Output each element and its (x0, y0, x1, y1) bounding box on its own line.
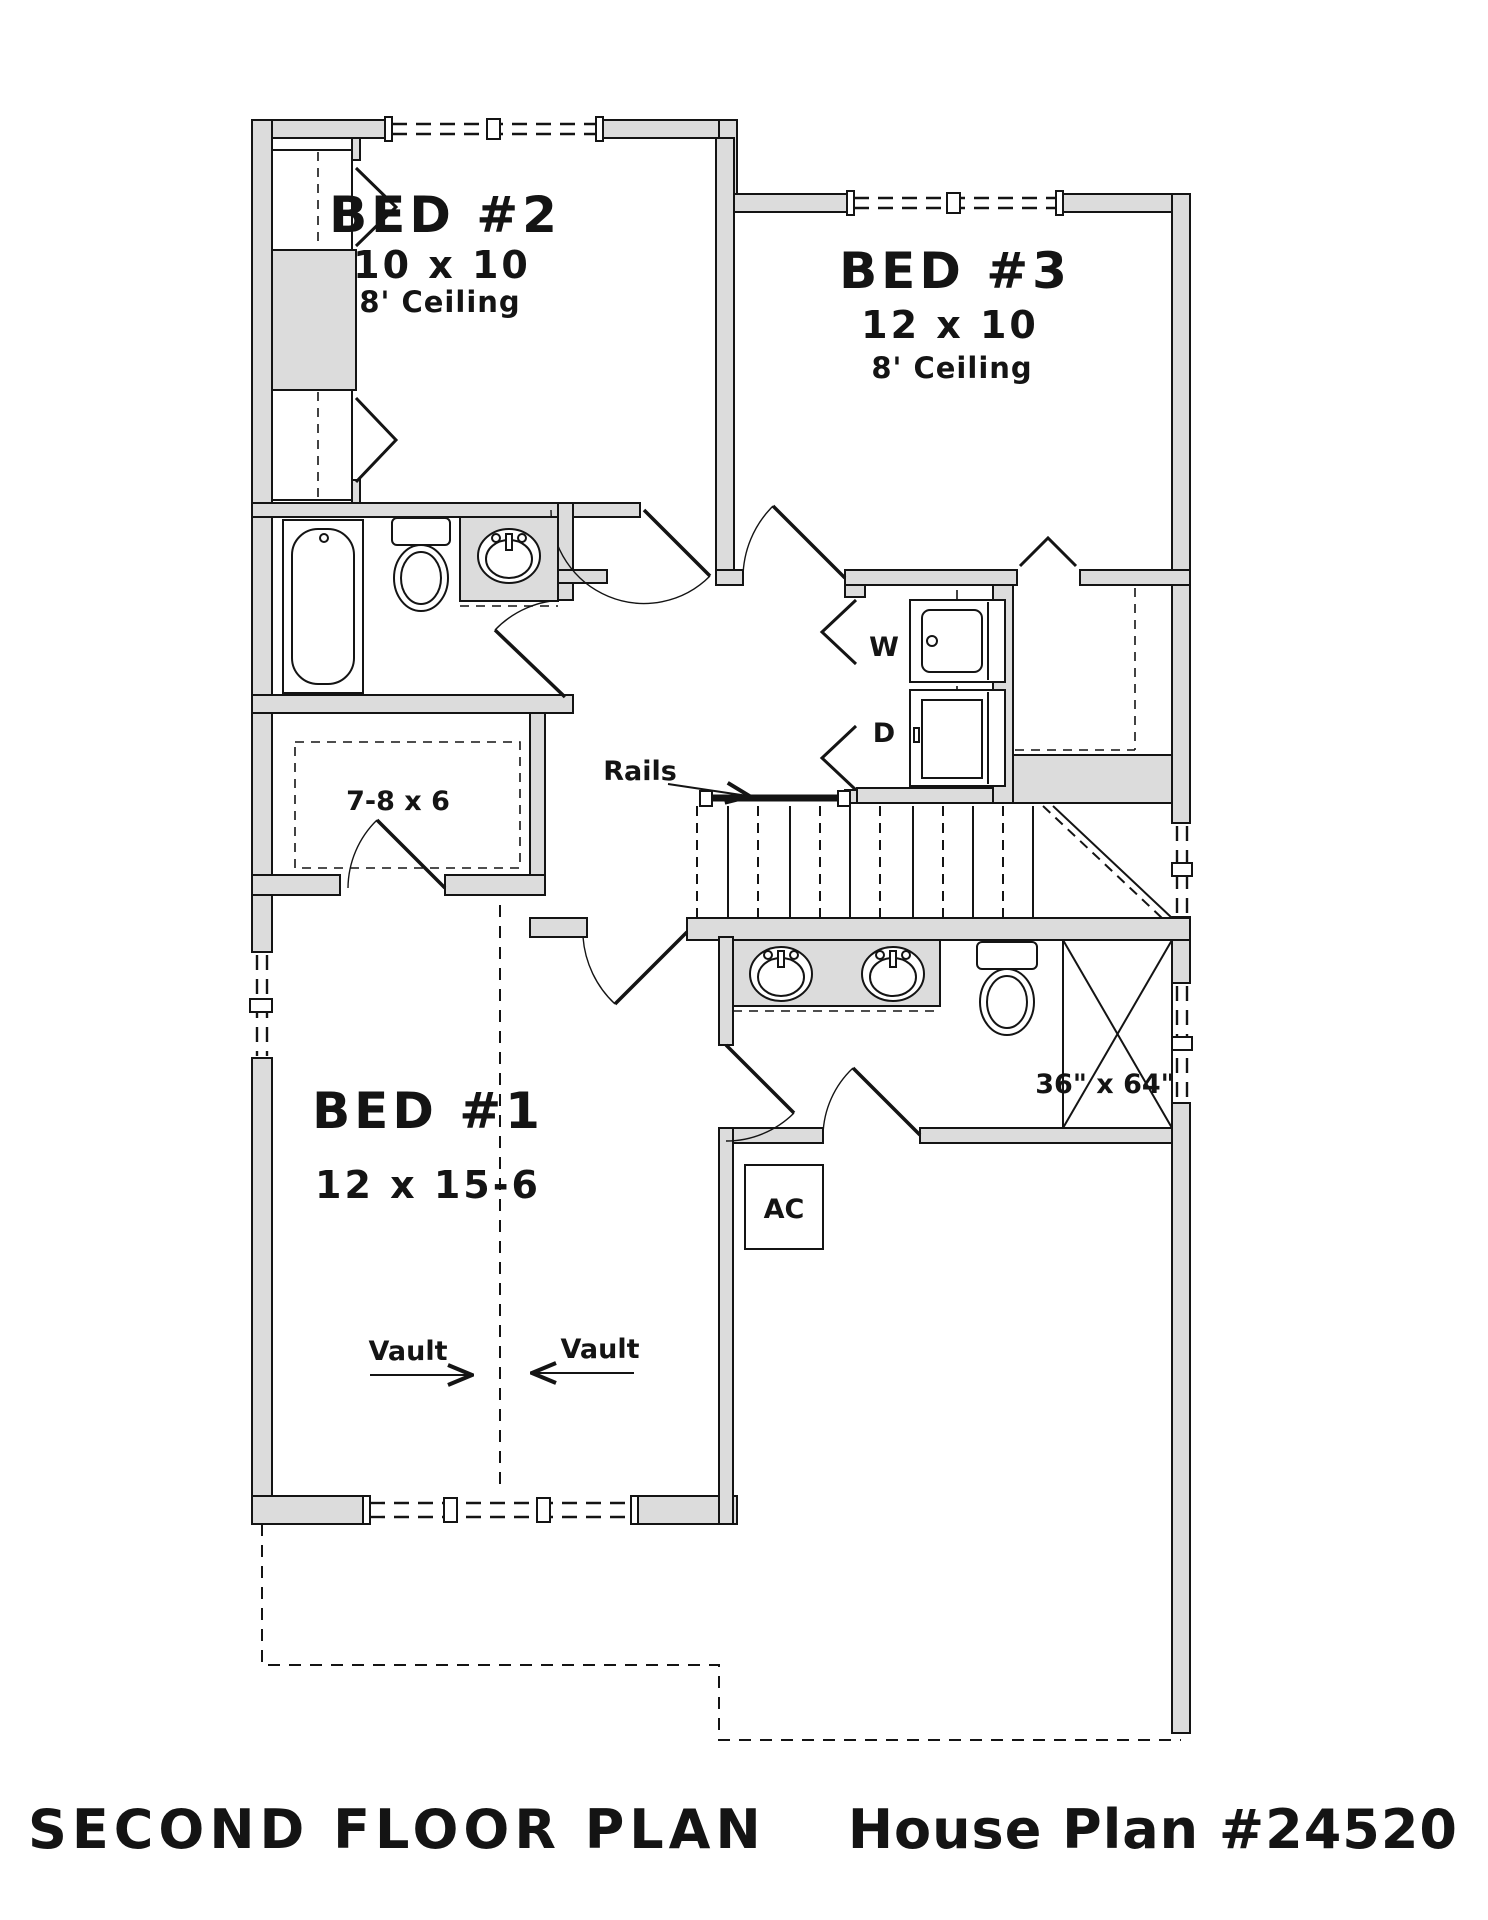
window-bed1-bottom (363, 1496, 638, 1524)
bed2-dims: 10 x 10 (353, 243, 531, 287)
ac-label: AC (764, 1194, 805, 1225)
toilet-1 (392, 518, 450, 611)
bed1-name: BED #1 (312, 1082, 544, 1140)
bed3-name: BED #3 (839, 242, 1071, 300)
toilet-2 (977, 942, 1037, 1035)
vault-left-label: Vault (368, 1336, 447, 1367)
walls (252, 120, 1190, 1733)
bed3-closet-door (1020, 538, 1076, 566)
stairwell-open-edge (1053, 806, 1172, 918)
floor-plan-canvas: W D (0, 0, 1488, 1920)
floor-plan-page: W D (0, 0, 1488, 1920)
dryer-label: D (873, 718, 895, 749)
drawing-title: SECOND FLOOR PLAN (28, 1798, 766, 1861)
bed2-name: BED #2 (329, 186, 561, 244)
walkin-closet-door (348, 820, 445, 888)
window-bed1-left (250, 955, 272, 1056)
storage-door (823, 1068, 920, 1135)
bath1-door (495, 600, 565, 697)
title-block: SECOND FLOOR PLAN House Plan #24520 (28, 1798, 1458, 1861)
laundry: W D (869, 590, 1005, 786)
vault-annotations: Vault Vault (368, 1334, 639, 1375)
bed3-ceiling: 8' Ceiling (871, 351, 1032, 385)
plan-number: House Plan #24520 (848, 1798, 1458, 1861)
vault-right-label: Vault (560, 1334, 639, 1365)
bathtub (283, 520, 363, 693)
closet-door-icon (356, 398, 396, 482)
laundry-bifold-doors (822, 600, 856, 790)
dryer (910, 690, 1005, 786)
double-vanity (733, 940, 940, 1011)
rails-annotation: Rails (603, 756, 748, 796)
window-bed2-top (385, 117, 603, 141)
shower-size-label: 36" x 64" (1035, 1069, 1175, 1100)
roof-overhang-outline (262, 1524, 1181, 1740)
bed3-closet (1015, 588, 1135, 750)
washer-label: W (869, 632, 899, 663)
vanity-sink-1 (460, 517, 558, 606)
bed3-dims: 12 x 10 (861, 303, 1039, 347)
window-right-upper (1172, 826, 1192, 915)
stair-rail (700, 791, 850, 806)
window-bed3-top (847, 191, 1063, 215)
closet-dims: 7-8 x 6 (346, 786, 450, 817)
bath2-door (726, 1045, 794, 1141)
bed2-closet-lower (272, 390, 352, 500)
window-right-lower (1172, 986, 1192, 1101)
bed3-door (743, 506, 845, 578)
bed1-dims: 12 x 15-6 (315, 1163, 541, 1207)
bed2-door (551, 510, 710, 603)
bed1-door (583, 932, 687, 1004)
ac-unit: AC (745, 1165, 823, 1249)
stairs (697, 806, 1172, 918)
washer (910, 600, 1005, 682)
bed2-ceiling: 8' Ceiling (359, 285, 520, 319)
rails-label: Rails (603, 756, 677, 787)
